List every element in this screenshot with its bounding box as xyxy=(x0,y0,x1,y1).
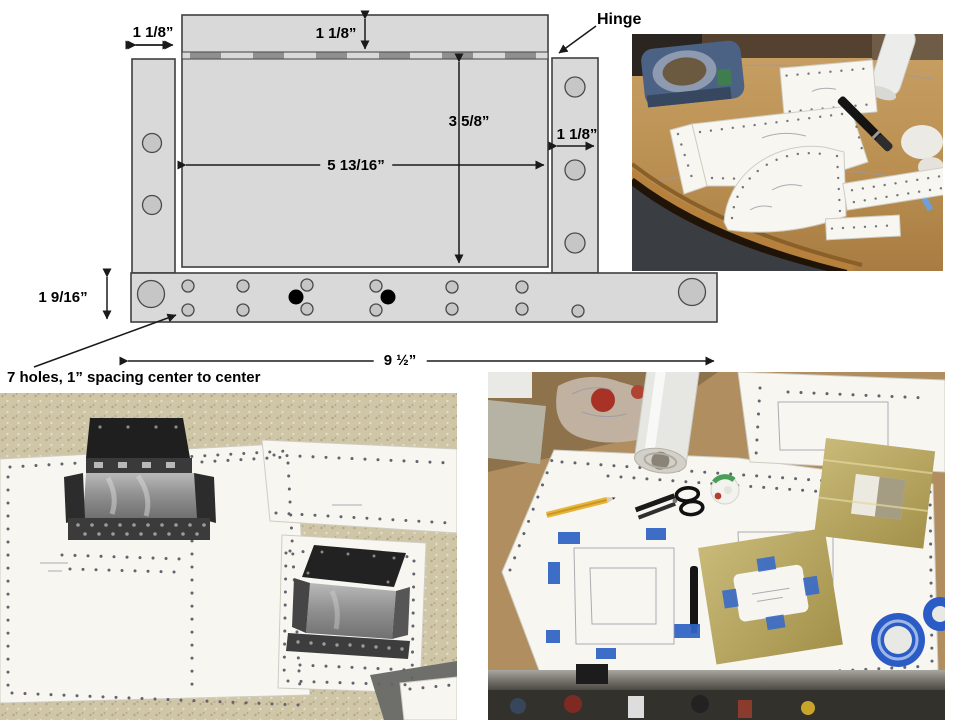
filled-hole xyxy=(381,290,396,305)
bottom-bar xyxy=(131,273,717,322)
template-sheet-corner xyxy=(400,677,457,720)
filled-hole xyxy=(289,290,304,305)
dim-bottom-bar-height: 1 9/16” xyxy=(38,289,87,306)
photo-paper-templates-on-table xyxy=(632,34,943,271)
marker-pen xyxy=(690,566,698,633)
template-sheet-top-right xyxy=(262,440,457,533)
holes-leader-line xyxy=(34,315,176,367)
left-flange-bar xyxy=(132,59,175,273)
magnifier-visor xyxy=(640,40,746,108)
brass-plate-center xyxy=(698,528,843,665)
crumpled-tissue xyxy=(901,125,943,159)
dim-plate-height: 3 5/8” xyxy=(449,113,490,130)
dim-total-width: 9 ½” xyxy=(374,352,427,369)
hinge-strip xyxy=(182,52,548,59)
dim-plate-width: 5 13/16” xyxy=(320,157,392,174)
blue-tape-roll-large xyxy=(871,613,925,667)
hinge-label: Hinge xyxy=(597,11,641,28)
holes-note: 7 holes, 1” spacing center to center xyxy=(7,369,260,386)
brass-frame-cutout xyxy=(814,438,935,549)
dim-right-flange: 1 1/8” xyxy=(557,126,598,143)
photo-workbench-templates xyxy=(488,372,945,720)
photo-metal-boxes-on-templates xyxy=(0,393,457,720)
slide: 1 1/8” 1 1/8” Hinge 1 1/8” 3 5/8” 5 13/1… xyxy=(0,0,960,720)
table-edge-pipe xyxy=(488,664,945,720)
dim-hinge-offset: 1 1/8” xyxy=(316,25,357,42)
paper-template-short-strip xyxy=(825,215,900,240)
dim-top-left-flange: 1 1/8” xyxy=(133,24,174,41)
hinge-leader-line xyxy=(559,26,596,53)
metal-sheet-edge xyxy=(488,400,546,464)
small-tape-roll xyxy=(711,476,739,504)
